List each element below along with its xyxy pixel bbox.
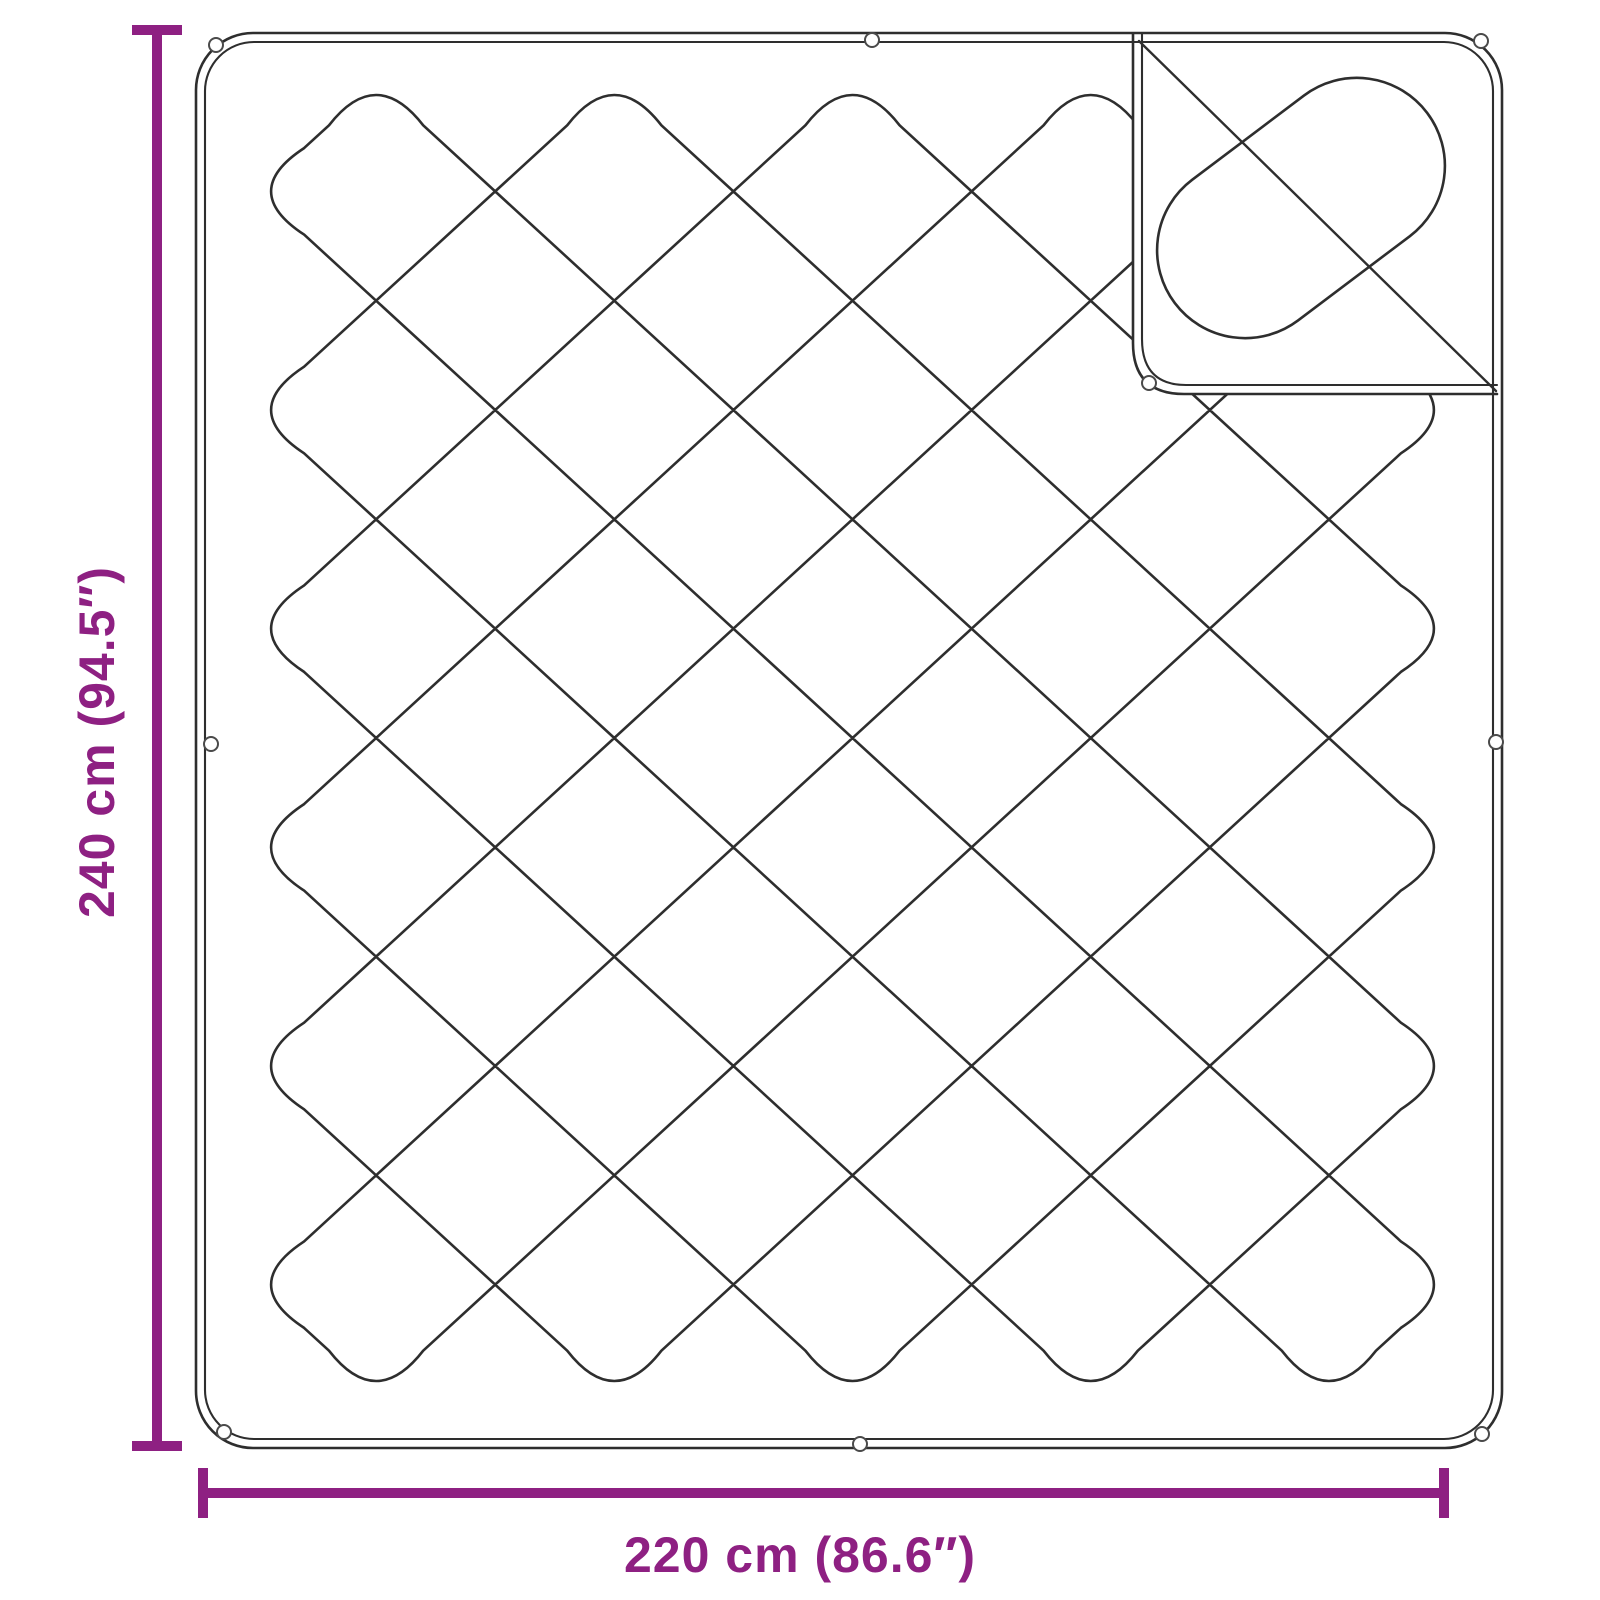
- grommet-eyelet: [217, 1425, 231, 1439]
- grommet-eyelet: [204, 737, 218, 751]
- grommet-eyelet: [1489, 735, 1503, 749]
- width-dimension-label: 220 cm (86.6″): [624, 1527, 976, 1583]
- corner-flap: [1122, 34, 1500, 394]
- blanket-dimension-diagram: 240 cm (94.5″) 220 cm (86.6″): [0, 0, 1600, 1600]
- grommet-eyelet: [1474, 34, 1488, 48]
- grommet-eyelet: [865, 33, 879, 47]
- grommet-eyelet: [1475, 1427, 1489, 1441]
- grommet-eyelet: [1142, 376, 1156, 390]
- grommet-eyelet: [853, 1437, 867, 1451]
- grommet-eyelet: [209, 38, 223, 52]
- diagram-canvas: 240 cm (94.5″) 220 cm (86.6″): [0, 0, 1600, 1600]
- width-dimension: 220 cm (86.6″): [203, 1468, 1444, 1583]
- height-dimension: 240 cm (94.5″): [69, 30, 182, 1446]
- height-dimension-label: 240 cm (94.5″): [69, 566, 125, 918]
